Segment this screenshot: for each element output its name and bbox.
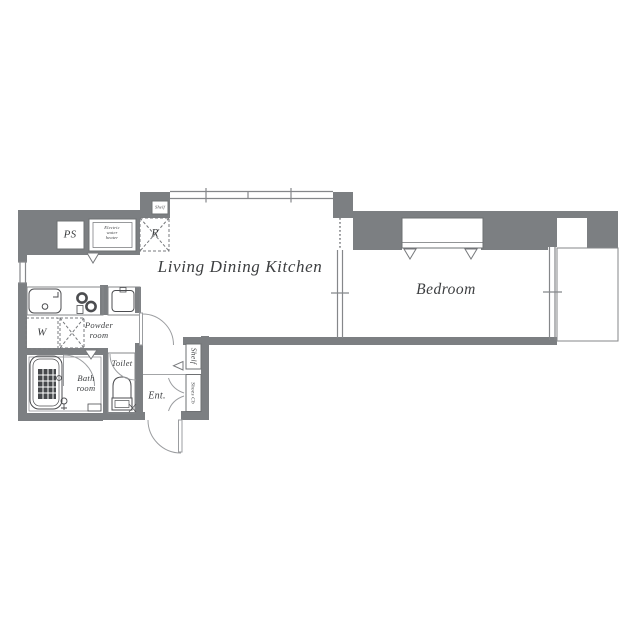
wall-bath-south bbox=[18, 413, 103, 421]
wall-corner-block bbox=[587, 218, 618, 248]
label-powder-room: Powder room bbox=[85, 321, 113, 341]
label-pipe-space: PS bbox=[64, 229, 77, 242]
wall-window-stub bbox=[548, 218, 557, 247]
closet-door-triangle-1 bbox=[404, 249, 416, 259]
wall-step-block bbox=[333, 192, 353, 218]
label-toilet: Toilet bbox=[112, 359, 133, 369]
vanity-basin bbox=[112, 291, 134, 312]
stove-grill bbox=[77, 306, 83, 314]
wall-band-fill-b bbox=[481, 218, 548, 250]
floor-plan-canvas: Living Dining Kitchen Bedroom PS R W Toi… bbox=[0, 0, 639, 640]
balcony-outline bbox=[557, 248, 618, 341]
toilet-bowl bbox=[113, 377, 131, 398]
sink-faucet bbox=[53, 292, 58, 297]
hall-step-triangle bbox=[174, 362, 184, 371]
wall-counter-stub bbox=[100, 285, 108, 315]
front-door-arc bbox=[148, 420, 181, 453]
stove-burner-2 bbox=[86, 302, 95, 311]
wall-band-fill-a bbox=[353, 218, 402, 250]
shoes-door-arc-lower bbox=[169, 396, 185, 411]
toilet-tank-inner bbox=[115, 401, 129, 408]
label-hall-shelf: Shelf bbox=[189, 348, 198, 365]
label-washer: W bbox=[37, 327, 46, 340]
label-bath-line2: room bbox=[77, 384, 96, 394]
label-kitchen-shelf: Shelf bbox=[155, 204, 165, 209]
label-shoes-cabinet: Shoes Cb bbox=[190, 382, 196, 404]
linen-space-cross bbox=[60, 318, 84, 348]
label-powder-line2: room bbox=[85, 331, 113, 341]
wall-shoes-east bbox=[201, 336, 209, 420]
label-entrance: Ent. bbox=[148, 390, 166, 402]
vanity-faucet bbox=[120, 288, 126, 293]
wall-bath-toilet-divider bbox=[103, 352, 108, 413]
closet-door-triangle-2 bbox=[465, 249, 477, 259]
wall-south-main bbox=[183, 337, 557, 345]
bedroom-closet bbox=[402, 218, 483, 248]
label-refrigerator: R bbox=[151, 227, 158, 240]
wall-top-left bbox=[18, 210, 140, 218]
wall-corridor-west bbox=[135, 343, 143, 420]
wall-left bbox=[18, 210, 27, 421]
front-door-leaf bbox=[179, 420, 183, 452]
wall-top-band bbox=[353, 211, 618, 218]
label-living-dining-kitchen: Living Dining Kitchen bbox=[158, 257, 323, 277]
bath-step bbox=[88, 404, 101, 411]
kitchen-opening-triangle bbox=[87, 253, 99, 263]
label-water-heater-line3: heater bbox=[104, 235, 119, 240]
powder-door-leaf bbox=[140, 313, 143, 345]
label-bath-room: Bath room bbox=[77, 374, 96, 394]
sink-drain bbox=[42, 304, 48, 310]
powder-door-arc bbox=[143, 314, 174, 345]
label-bedroom: Bedroom bbox=[416, 281, 476, 299]
shower-hose bbox=[61, 404, 67, 410]
shoes-door-arc-upper bbox=[169, 378, 185, 393]
label-water-heater: Electric water heater bbox=[104, 226, 119, 241]
stove-burner-1 bbox=[77, 293, 86, 302]
